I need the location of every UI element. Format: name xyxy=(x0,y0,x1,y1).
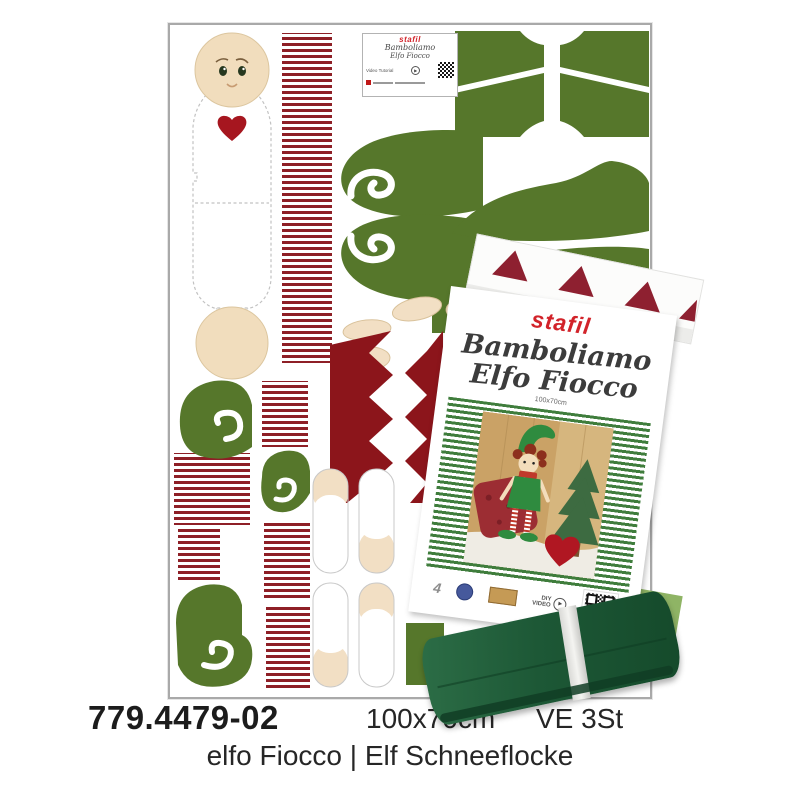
panel-label-title2: Elfo Fiocco xyxy=(366,52,454,60)
pattern-piece-body xyxy=(193,87,271,322)
play-icon: ▶ xyxy=(411,66,420,75)
pattern-piece-striped-strip xyxy=(282,33,332,363)
panel-info-label: stafil Bamboliamo Elfo Fiocco Video Tuto… xyxy=(362,33,458,97)
article-number: 779.4479-02 xyxy=(88,699,279,737)
panel-label-title: Bamboliamo xyxy=(366,44,454,52)
elf-doll-photo xyxy=(463,411,614,579)
packing-unit: VE 3St xyxy=(536,703,623,735)
certification-badge-icon xyxy=(456,582,475,601)
quantity-label: 4 xyxy=(432,579,442,596)
pattern-pieces-overalls xyxy=(455,31,649,137)
pattern-piece-hat-top xyxy=(341,130,483,217)
pattern-pieces-arms xyxy=(313,469,394,687)
photo-frame xyxy=(426,397,651,594)
logo-mark xyxy=(366,80,371,85)
qr-code-icon xyxy=(438,62,454,78)
award-badge-icon xyxy=(488,587,518,607)
diy-label-line2: VIDEO xyxy=(532,600,551,608)
fine-print xyxy=(395,82,425,84)
product-photo-page: stafil Bamboliamo Elfo Fiocco Video Tuto… xyxy=(0,0,800,800)
video-tutorial-label: Video Tutorial xyxy=(366,68,393,73)
product-name: elfo Fiocco | Elf Schneeflocke xyxy=(150,740,630,772)
package-paper-label: stafil Bamboliamo Elfo Fiocco 100x70cm xyxy=(408,286,677,641)
fine-print xyxy=(373,82,393,84)
pattern-piece-head-back xyxy=(196,307,268,379)
pattern-piece-head xyxy=(195,33,269,107)
